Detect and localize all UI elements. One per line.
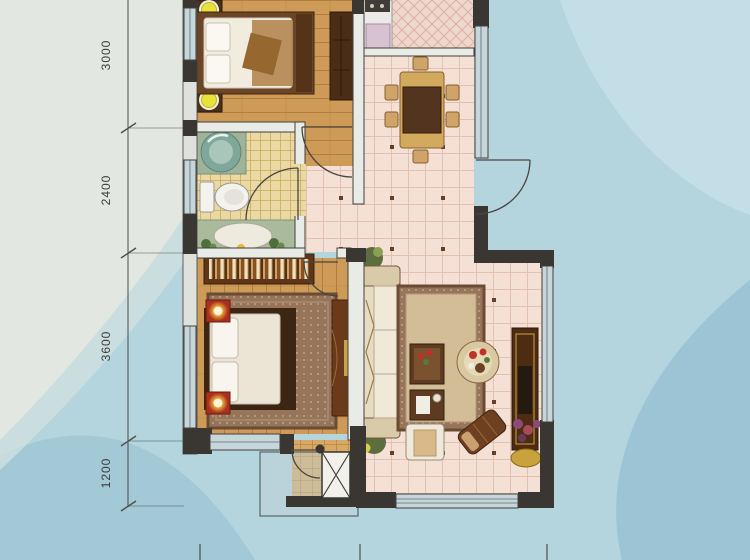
stove-icon <box>365 0 390 12</box>
pillow <box>212 318 238 358</box>
sofa-seat <box>374 286 400 418</box>
flower-icon <box>533 420 541 428</box>
wall-bath-master <box>195 248 305 258</box>
glass-washbasin-inner <box>209 140 233 164</box>
flower-icon <box>518 434 526 442</box>
leaf-icon <box>423 359 429 365</box>
wall-bedroom-bath <box>195 122 302 132</box>
dining-chair <box>446 112 459 127</box>
lamp-icon <box>213 306 223 316</box>
wall-kitchen-dining <box>364 48 474 56</box>
stove-burner <box>380 4 384 8</box>
dim-label-2400: 2400 <box>99 175 113 206</box>
tv-icon <box>518 366 532 414</box>
flower-icon <box>480 349 487 356</box>
stove-burner <box>370 4 374 8</box>
kitchen-floor <box>392 0 474 50</box>
dining-chair <box>385 85 398 100</box>
lamp-icon <box>202 93 217 108</box>
flower-icon <box>513 419 523 429</box>
leaf-icon <box>484 357 490 363</box>
sofa-arm <box>360 266 400 286</box>
living-bottom-window <box>396 494 518 508</box>
flower-icon <box>523 425 533 435</box>
dim-label-3600: 3600 <box>99 331 113 362</box>
door-pivot-icon <box>316 445 325 454</box>
lamp-icon <box>213 398 223 408</box>
gold-dish <box>511 449 541 467</box>
desk-handle <box>344 340 348 376</box>
bed-footboard <box>296 14 312 92</box>
toilet-bowl-inner <box>224 189 244 205</box>
floor-plan-photo: 3000 2400 3600 1200 <box>0 0 750 560</box>
dining-chair <box>446 85 459 100</box>
living-right-window <box>542 266 553 422</box>
flower-icon <box>469 351 477 359</box>
flower-icon <box>468 363 474 369</box>
floor-plan-canvas: 3000 2400 3600 1200 <box>0 0 750 560</box>
flower-pot-icon <box>475 363 485 373</box>
armchair-cushion <box>414 430 436 456</box>
pillow <box>206 23 230 51</box>
dim-label-1200: 1200 <box>99 458 113 489</box>
dim-label-3000: 3000 <box>99 40 113 71</box>
dining-table-top <box>403 87 441 133</box>
side-table-book <box>416 396 430 414</box>
dining-chair <box>413 150 428 163</box>
wall-bedroom-dining <box>353 12 364 204</box>
toilet-tank <box>200 182 214 212</box>
dining-right-window <box>475 26 488 158</box>
bedroom-top-door-nook-floor <box>302 122 354 168</box>
kitchen-fixtures <box>364 0 392 50</box>
dining-chair <box>413 57 428 70</box>
dining-chair <box>385 112 398 127</box>
bathroom-door-opening <box>294 164 306 216</box>
pillow <box>206 55 230 83</box>
plant-leaf <box>373 247 383 257</box>
kitchen-appliance <box>366 24 390 48</box>
wall-master-living <box>348 258 364 440</box>
side-table-bowl <box>433 394 441 402</box>
plant-icon <box>269 238 279 248</box>
flower-icon <box>418 353 424 359</box>
flower-icon <box>426 350 432 356</box>
bookshelf-books <box>209 259 309 279</box>
